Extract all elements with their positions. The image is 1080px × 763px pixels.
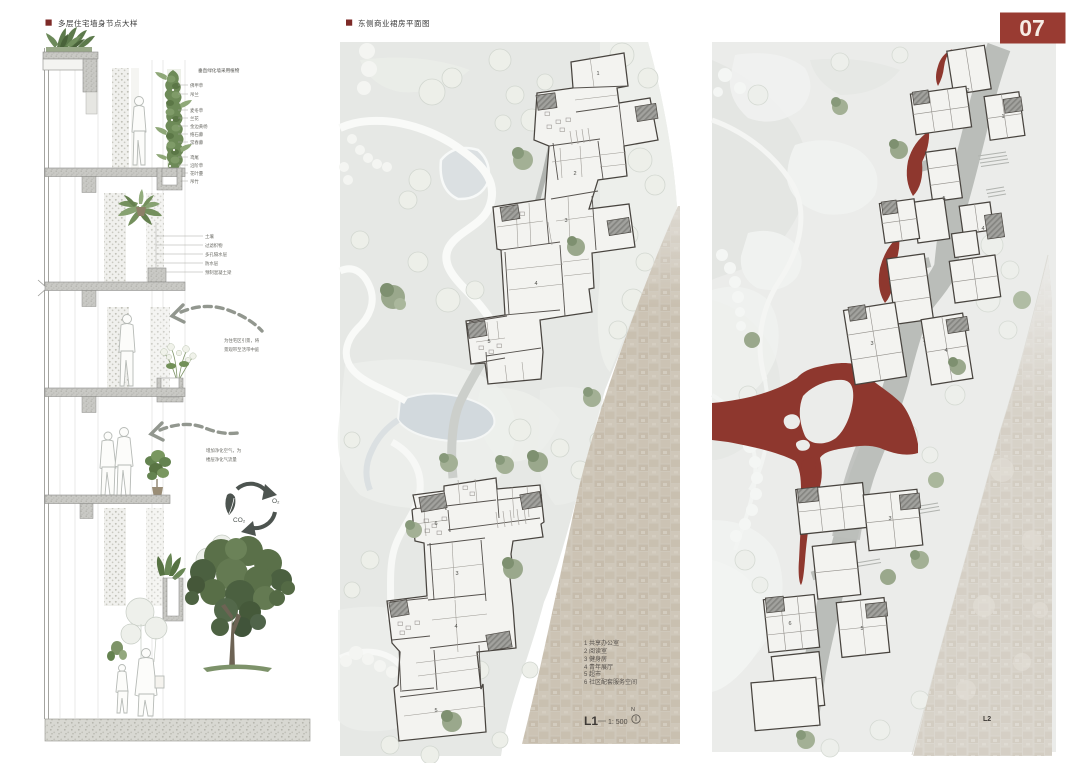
svg-text:4: 4 <box>454 624 457 630</box>
svg-text:CO₂: CO₂ <box>233 517 246 524</box>
svg-text:5: 5 <box>487 339 490 345</box>
svg-text:多孔隔水层: 多孔隔水层 <box>205 251 228 258</box>
svg-text:东侧商业裙房平面图: 东侧商业裙房平面图 <box>358 18 430 28</box>
svg-text:6: 6 <box>788 621 791 627</box>
svg-text:1: 500: 1: 500 <box>608 719 628 726</box>
svg-text:花叶蔓: 花叶蔓 <box>190 170 204 177</box>
svg-text:防水层: 防水层 <box>205 260 219 267</box>
svg-text:常春藤: 常春藤 <box>190 139 204 146</box>
svg-text:络石藤: 络石藤 <box>190 131 204 138</box>
svg-text:麦冬草: 麦冬草 <box>190 107 204 114</box>
svg-text:6: 6 <box>434 521 437 527</box>
svg-text:景观带至活带中庭: 景观带至活带中庭 <box>224 346 260 353</box>
svg-text:O₂: O₂ <box>272 498 280 505</box>
svg-text:土壤: 土壤 <box>205 233 214 240</box>
svg-text:过滤织物: 过滤织物 <box>205 242 223 249</box>
svg-text:为住宅区引景，将: 为住宅区引景，将 <box>224 337 260 344</box>
svg-text:多层住宅墙身节点大样: 多层住宅墙身节点大样 <box>58 18 138 28</box>
svg-text:吊竹: 吊竹 <box>190 178 199 185</box>
svg-text:3: 3 <box>564 218 567 224</box>
svg-text:1 共享办公室: 1 共享办公室 <box>584 639 619 647</box>
svg-text:4: 4 <box>944 348 947 354</box>
svg-text:6 社区配套服务空间: 6 社区配套服务空间 <box>584 678 637 686</box>
svg-text:5: 5 <box>860 626 863 632</box>
svg-text:佛甲草: 佛甲草 <box>190 82 204 89</box>
svg-text:5 超市: 5 超市 <box>584 670 601 678</box>
svg-text:兰花: 兰花 <box>190 115 199 122</box>
svg-text:5: 5 <box>942 196 945 202</box>
svg-text:3: 3 <box>888 516 891 522</box>
svg-text:沿阶草: 沿阶草 <box>190 162 204 169</box>
svg-text:4 青年展厅: 4 青年展厅 <box>584 663 613 671</box>
svg-text:垂直绿化墙采用植物: 垂直绿化墙采用植物 <box>198 67 240 74</box>
svg-text:3 健身房: 3 健身房 <box>584 655 607 663</box>
svg-text:4: 4 <box>534 281 537 287</box>
svg-text:楼层净化气流量: 楼层净化气流量 <box>206 456 237 463</box>
svg-text:吊兰: 吊兰 <box>190 91 199 98</box>
svg-text:金边黄杨: 金边黄杨 <box>190 123 208 130</box>
svg-text:2: 2 <box>966 88 969 94</box>
svg-text:4: 4 <box>981 226 984 232</box>
svg-text:增加净化空气，为: 增加净化空气，为 <box>206 447 241 454</box>
svg-text:L2: L2 <box>983 716 991 723</box>
svg-text:N: N <box>631 707 635 713</box>
svg-text:1: 1 <box>1001 114 1004 120</box>
svg-text:2: 2 <box>573 171 576 177</box>
svg-text:鸢尾: 鸢尾 <box>190 154 199 161</box>
svg-text:3: 3 <box>870 341 873 347</box>
svg-text:2 阅读室: 2 阅读室 <box>584 647 607 655</box>
svg-text:L1: L1 <box>584 714 598 728</box>
svg-text:5: 5 <box>434 708 437 714</box>
svg-text:3: 3 <box>455 571 458 577</box>
svg-text:1: 1 <box>596 71 599 77</box>
svg-text:预制混凝土梁: 预制混凝土梁 <box>205 269 232 276</box>
svg-text:07: 07 <box>1019 15 1045 41</box>
